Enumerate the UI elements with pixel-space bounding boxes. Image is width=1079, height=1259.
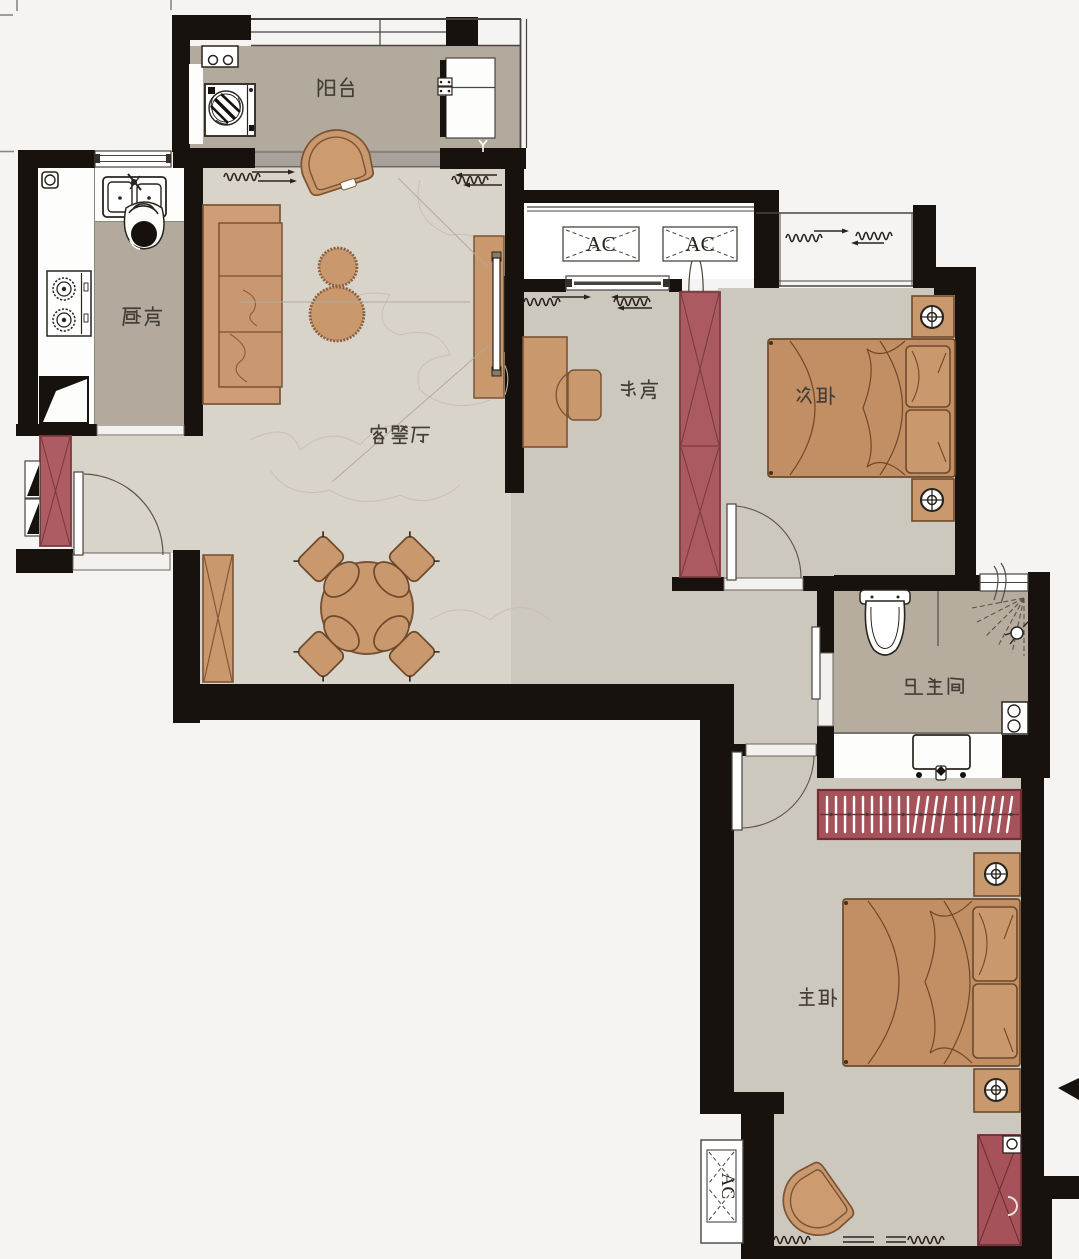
svg-text:AC: AC <box>586 232 615 256</box>
svg-text:AC: AC <box>717 1173 738 1199</box>
svg-text:AC: AC <box>685 232 714 256</box>
